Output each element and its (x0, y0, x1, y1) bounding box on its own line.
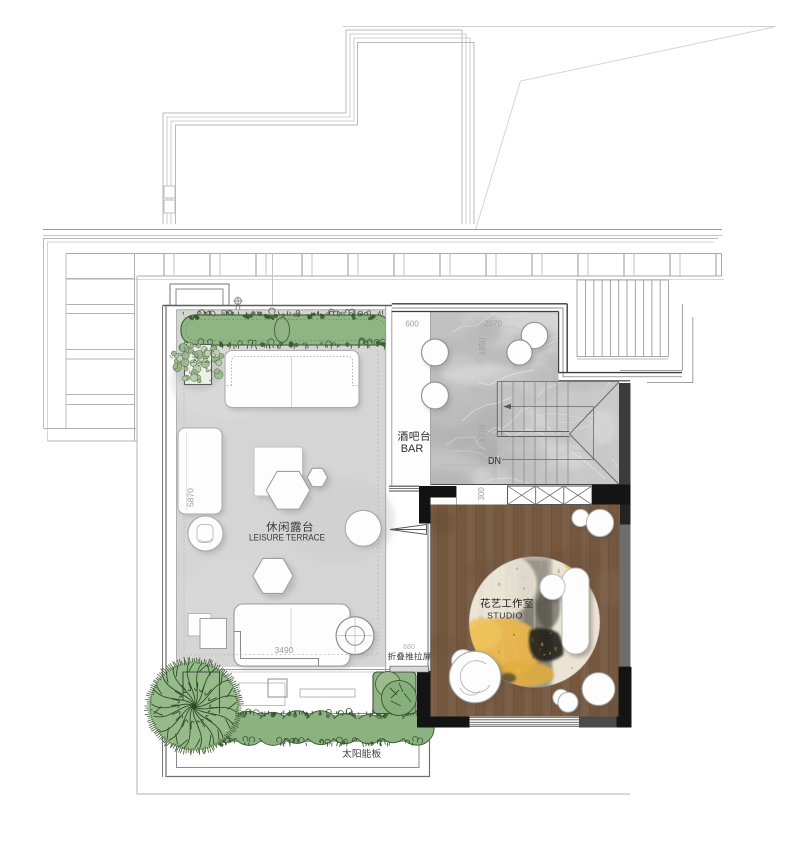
svg-text:3490: 3490 (275, 645, 294, 655)
svg-text:DN: DN (488, 456, 501, 467)
svg-text:1850: 1850 (478, 337, 487, 355)
svg-text:BAR: BAR (401, 443, 424, 455)
svg-text:5870: 5870 (186, 488, 196, 507)
svg-text:600: 600 (405, 320, 419, 329)
svg-text:LEISURE TERRACE: LEISURE TERRACE (249, 533, 325, 544)
svg-text:2070: 2070 (484, 320, 502, 329)
svg-text:300: 300 (477, 487, 486, 501)
svg-text:680: 680 (403, 644, 415, 651)
svg-text:STUDIO: STUDIO (487, 611, 523, 621)
svg-text:1770: 1770 (479, 424, 488, 442)
